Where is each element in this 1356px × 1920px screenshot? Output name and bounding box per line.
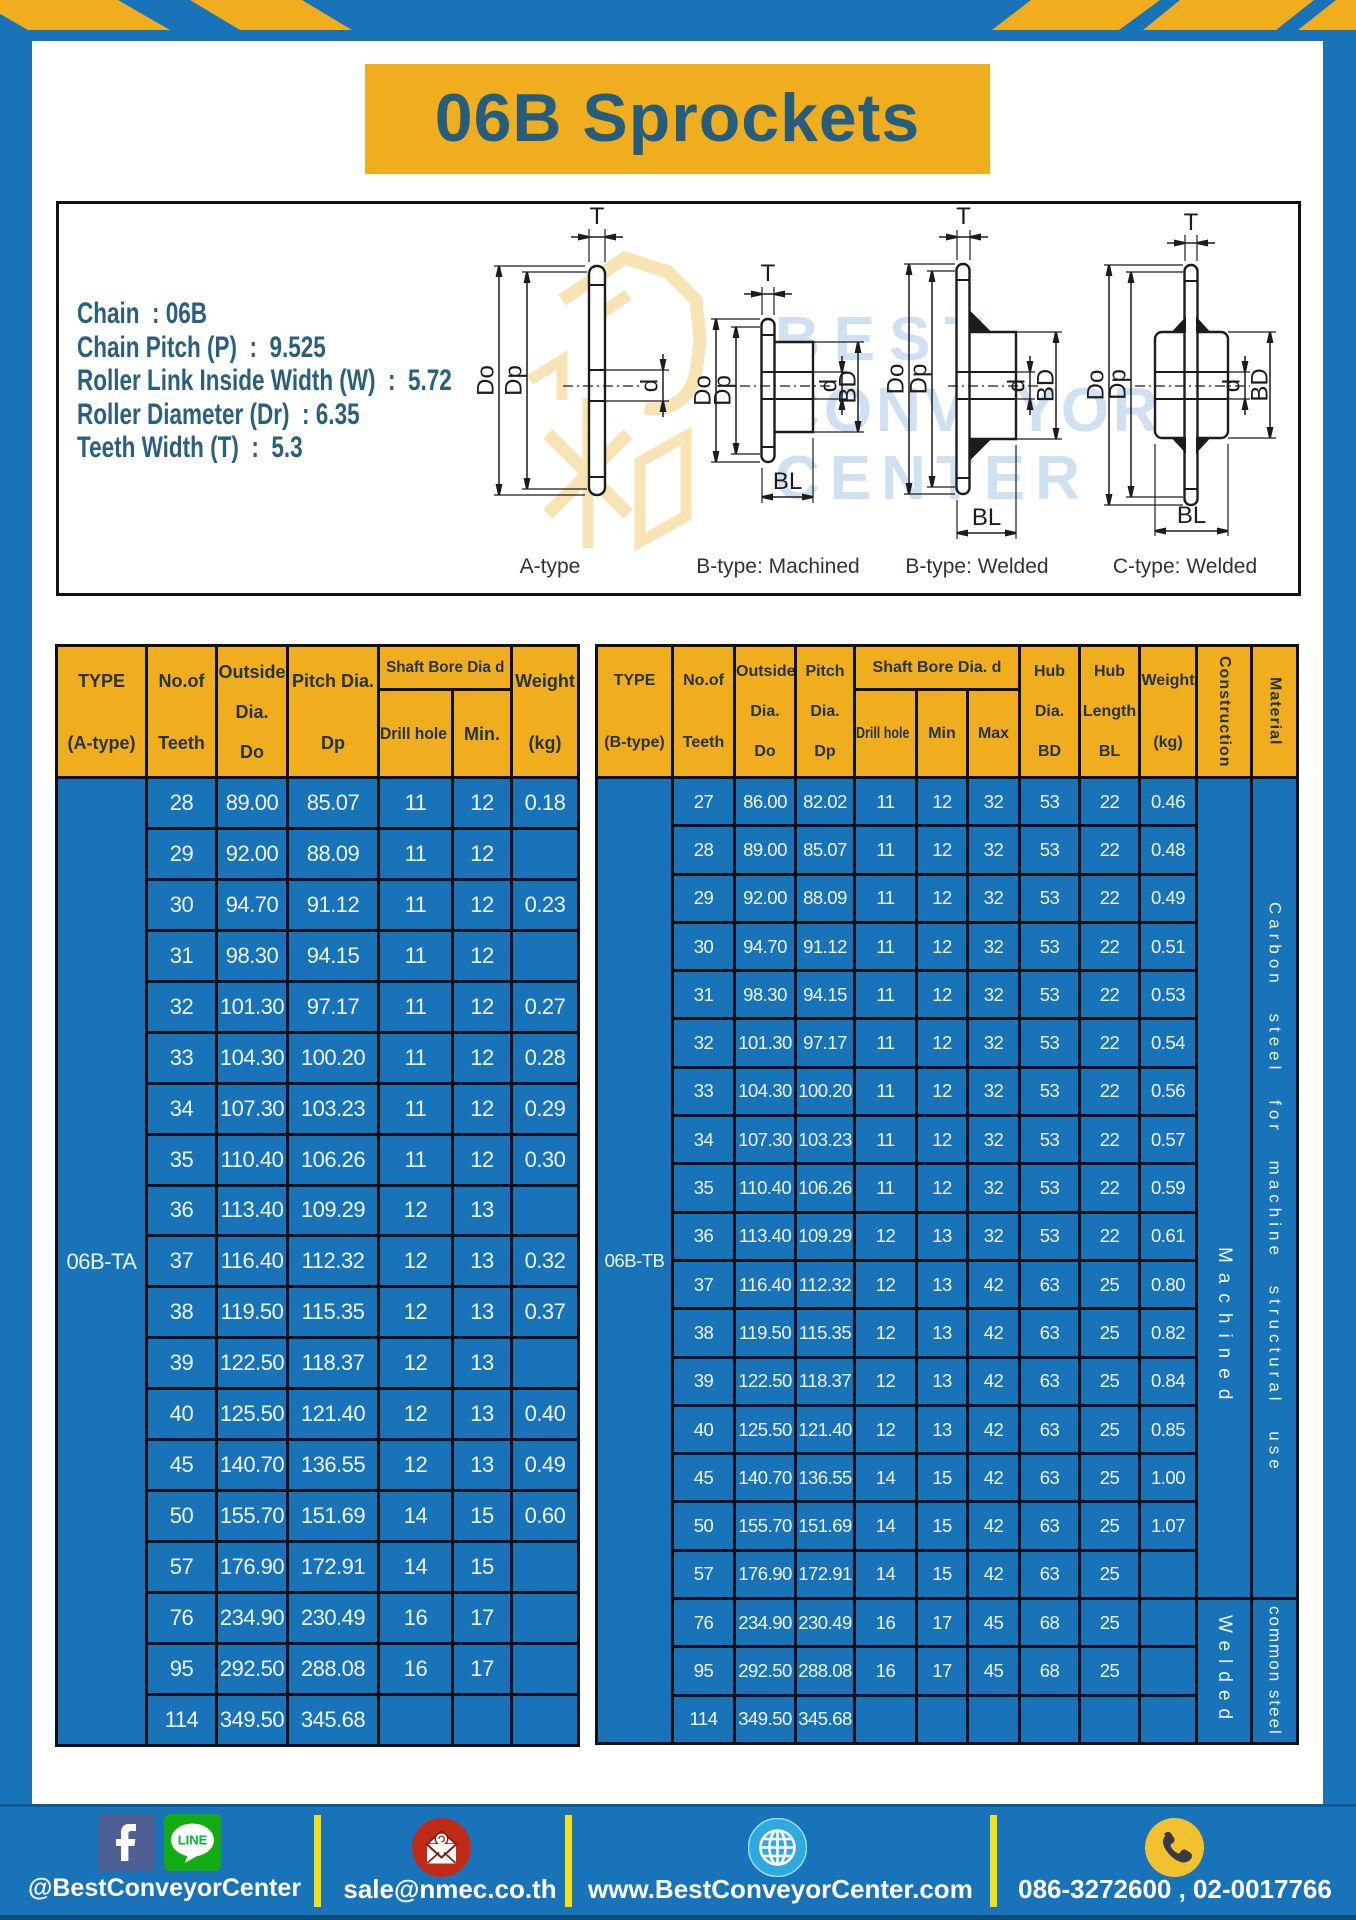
svg-text:BD: BD [834,370,861,403]
svg-text:LINE: LINE [178,1833,208,1848]
svg-text:d: d [1218,379,1245,392]
svg-text:BD: BD [1032,369,1059,402]
svg-text:BL: BL [773,468,802,495]
svg-text:T: T [590,203,605,230]
svg-text:Dp: Dp [1104,369,1131,400]
svg-text:Do: Do [472,365,499,396]
svg-text:d: d [1003,379,1030,392]
svg-text:C-type: Welded: C-type: Welded [1113,555,1257,578]
svg-text:Dp: Dp [905,364,932,395]
svg-text:Dp: Dp [500,365,527,396]
svg-text:T: T [1184,209,1199,236]
svg-text:A-type: A-type [520,555,581,578]
svg-text:B-type: Machined: B-type: Machined [696,555,859,578]
svg-text:T: T [761,260,776,287]
svg-text:BL: BL [972,504,1001,531]
svg-text:Dp: Dp [709,375,736,406]
svg-text:B-type: Welded: B-type: Welded [905,555,1048,578]
svg-text:BD: BD [1246,368,1273,401]
svg-text:d: d [636,379,663,392]
svg-text:T: T [956,203,971,230]
svg-text:BL: BL [1177,502,1206,529]
